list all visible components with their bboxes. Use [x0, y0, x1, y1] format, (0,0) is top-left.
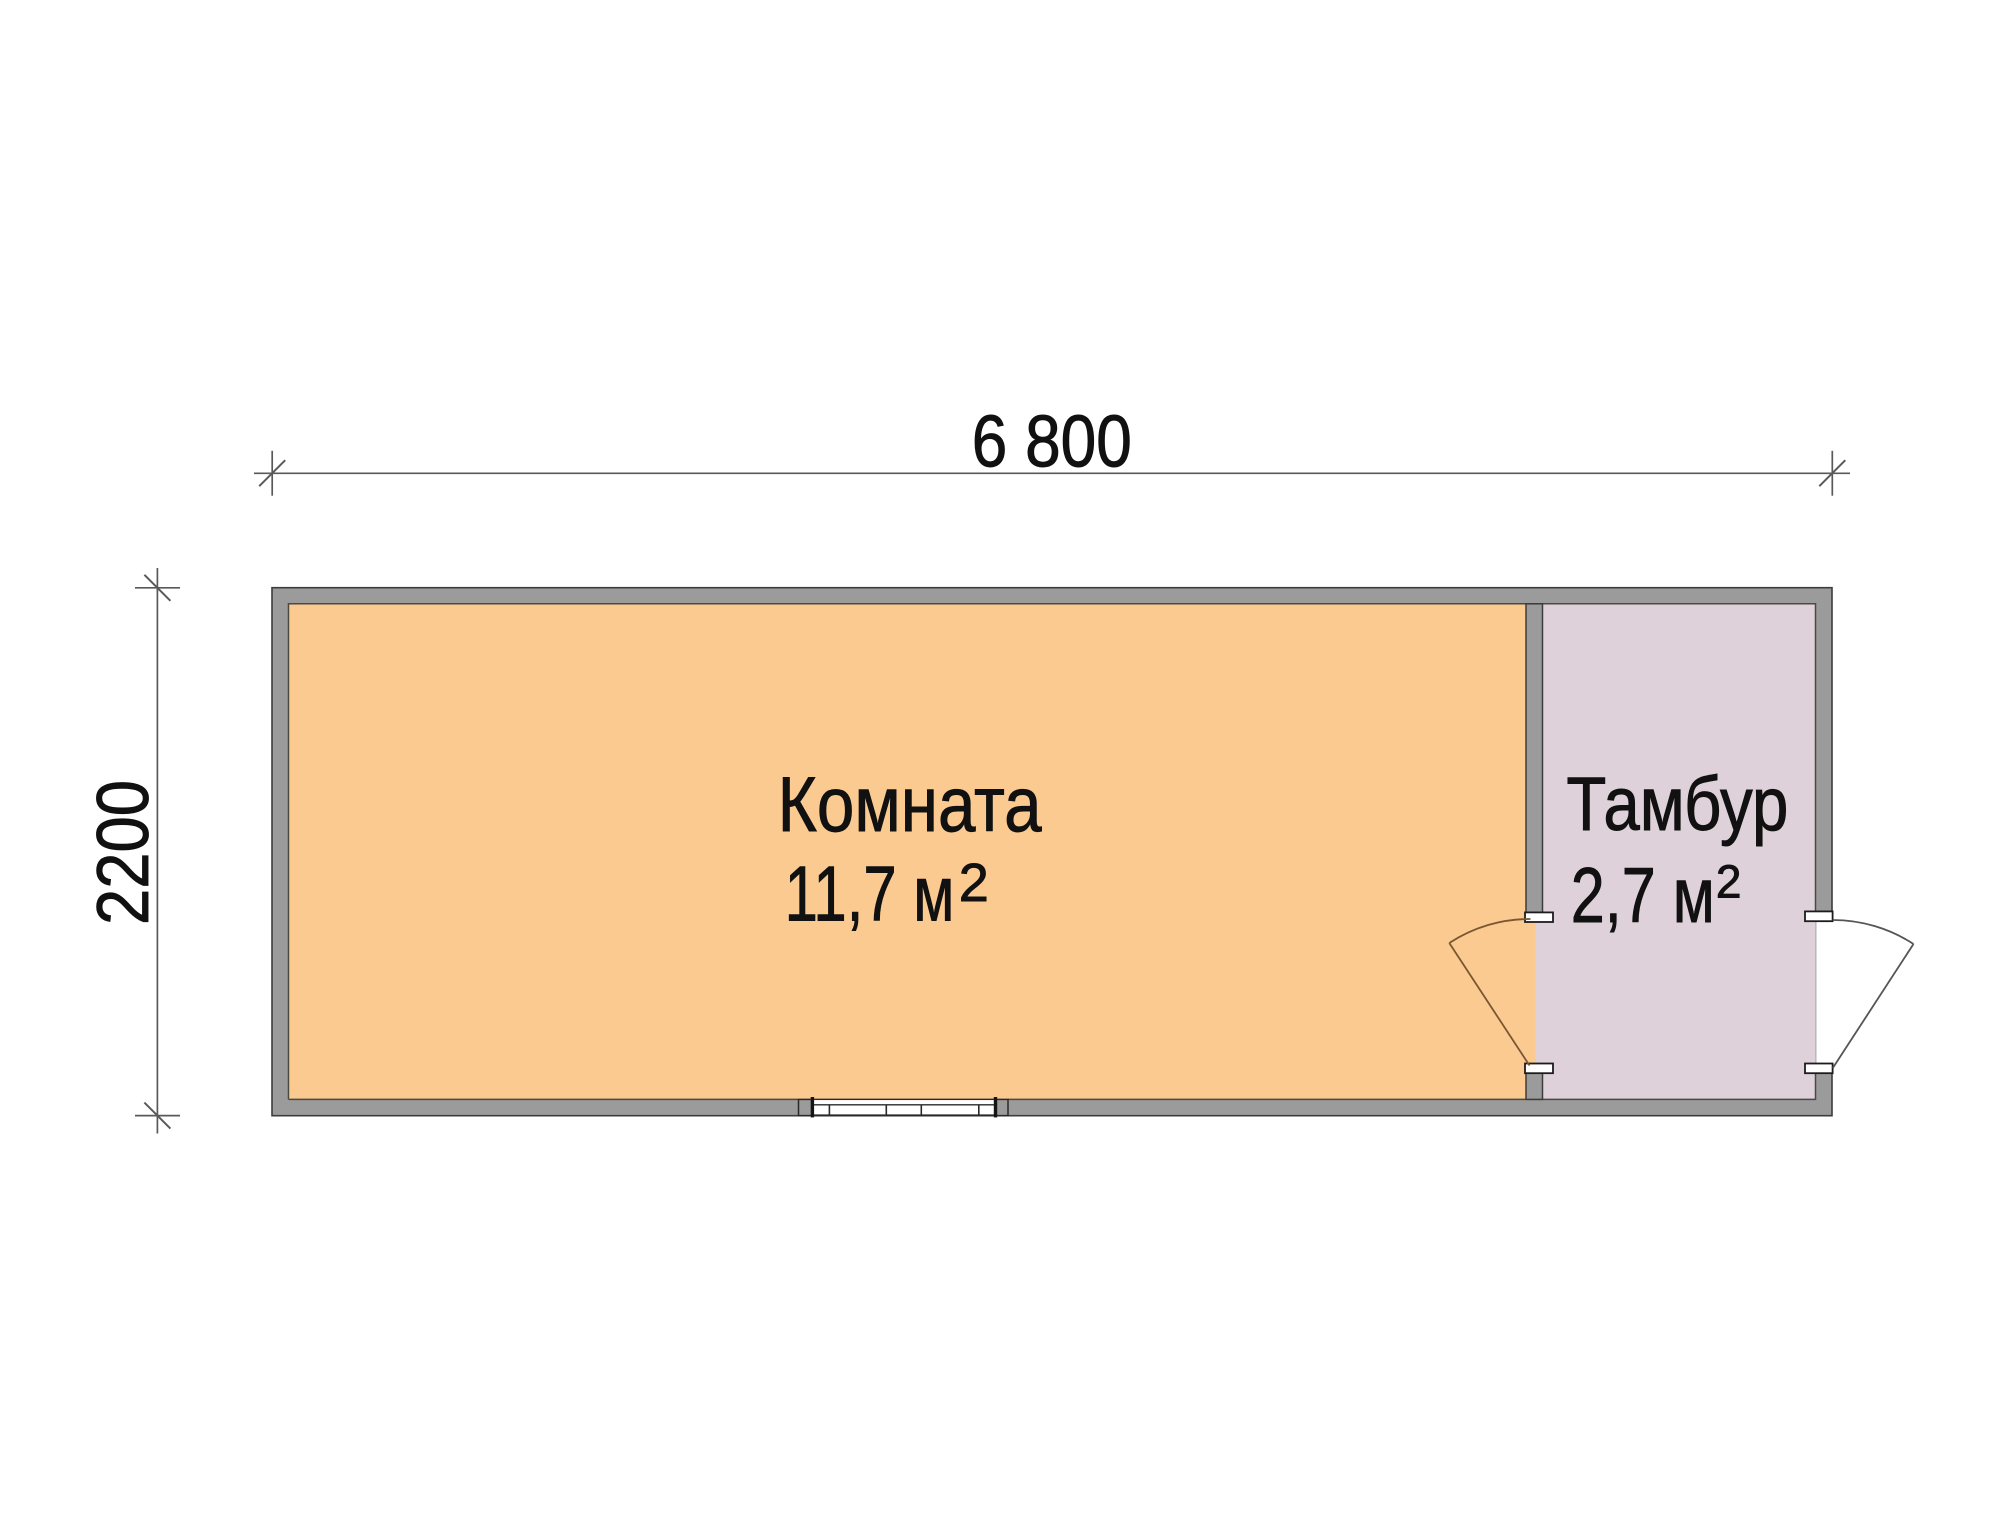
svg-text:Комната: Комната [778, 760, 1043, 848]
svg-text:2: 2 [1716, 856, 1742, 908]
svg-text:2200: 2200 [83, 780, 164, 925]
svg-text:11,7 м: 11,7 м [785, 850, 955, 938]
svg-text:2: 2 [959, 853, 989, 913]
svg-text:6 800: 6 800 [972, 402, 1132, 483]
svg-text:Тамбур: Тамбур [1566, 762, 1788, 847]
svg-text:2,7 м: 2,7 м [1571, 851, 1715, 939]
